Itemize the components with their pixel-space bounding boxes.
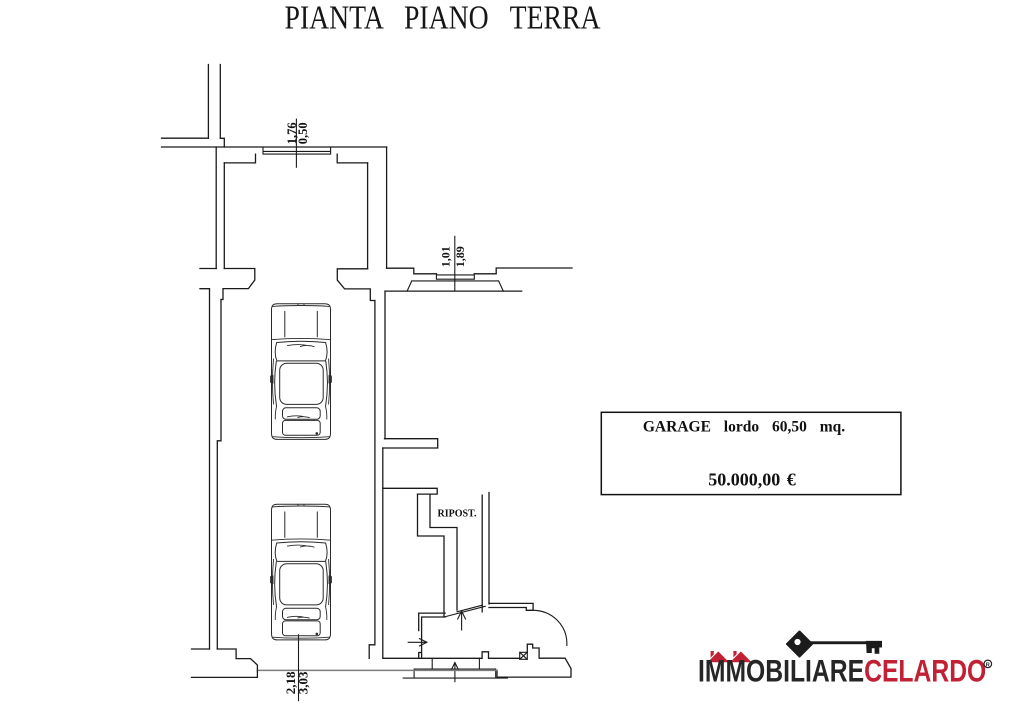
svg-text:RIPOST.: RIPOST. [438, 508, 477, 519]
svg-text:1,89: 1,89 [453, 246, 467, 267]
svg-text:GARAGE lordo 60,50 mq.: GARAGE lordo 60,50 mq. [643, 419, 845, 436]
svg-text:0,50: 0,50 [296, 122, 310, 144]
svg-text:50.000,00 €: 50.000,00 € [708, 470, 796, 490]
svg-text:PIANTA PIANO TERRA: PIANTA PIANO TERRA [285, 0, 601, 36]
svg-text:3,03: 3,03 [296, 671, 311, 694]
svg-text:R: R [986, 662, 990, 668]
svg-text:IMMOBILIARECELARDO: IMMOBILIARECELARDO [698, 653, 986, 689]
svg-text:1,01: 1,01 [439, 246, 453, 267]
